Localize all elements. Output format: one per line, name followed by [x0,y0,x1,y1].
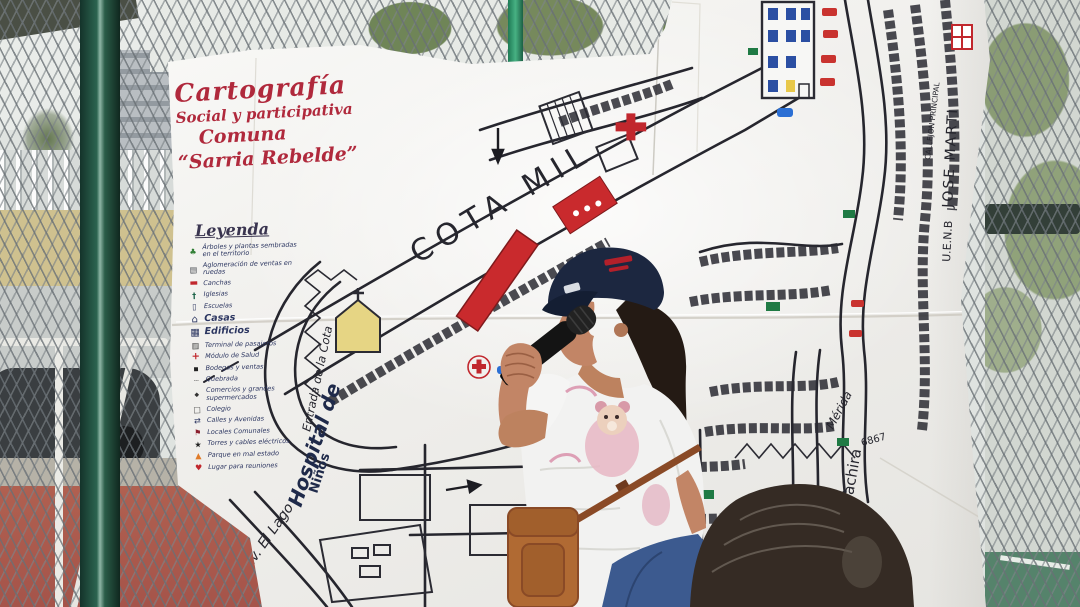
legend-item: ⚑Locales Comunales [192,425,304,437]
legend-item-label: Terminal de pasajeros [205,340,277,349]
legend-item: ◆Comercios y grandes supermercados [191,385,303,403]
buildings-icon: ▦ [190,328,201,337]
legend-item-label: Parque en mal estado [208,450,279,459]
legend-item: ▯Escuelas [189,300,301,312]
legend-item: ⇄Calles y Avenidas [192,414,304,426]
presenter-ear [614,323,628,337]
church-icon: † [189,291,200,300]
label-merida: Mérida [823,389,855,432]
legend-item-label: Torres y cables eléctricos [207,438,289,448]
sports-court-icon: ▬ [188,279,199,288]
legend-item-label: Bodegas y ventas [205,363,263,372]
legend-item-label: Escuelas [204,302,233,310]
terminal-icon: ▥ [190,341,201,350]
legend-item-label: Colegio [207,405,231,413]
legend-item-label: Quebrada [206,376,238,384]
legend-item-label: Aglomeración de ventas en ruedas [203,259,300,276]
legend-item-label: Iglesias [204,291,229,299]
plant-icon: ♣ [187,247,198,256]
star-icon: ★ [192,440,203,449]
legend-item: ▤Aglomeración de ventas en ruedas [188,259,300,277]
legend-item-label: Lugar para reuniones [208,462,278,471]
fence-pole [80,0,120,607]
legend-item-label: Módulo de Salud [205,352,259,361]
heart-icon: ♥ [193,463,204,472]
shops-icon: ▪ [190,364,201,373]
legend-item: ▪Bodegas y ventas [190,362,302,374]
legend-item-label: Calles y Avenidas [207,416,264,425]
flag-icon: ⚑ [192,428,203,437]
legend-item: ★Torres y cables eléctricos [192,437,304,449]
fence-pole-small [508,0,523,72]
audience-head [690,484,914,607]
school-icon: ▯ [189,302,200,311]
legend: Leyenda ♣Árboles y plantas sembradas en … [187,219,306,475]
legend-item: ▲Parque en mal estado [193,449,305,461]
legend-item: ♣Árboles y plantas sembradas en el terri… [187,242,299,260]
street-vendors-icon: ▤ [188,265,199,274]
triangle-icon: ▲ [193,451,204,460]
photo-scene: COTA MIL Entrada de la Cota Hospital de … [0,0,1080,607]
legend-item: ┄Quebrada [191,373,303,385]
legend-item: □Colegio [192,402,304,414]
supermarket-icon: ◆ [191,390,202,399]
legend-item: ⌂Casas [189,311,301,325]
chapel-flag [952,25,972,49]
poster-title: Cartografía Social y participativa Comun… [174,66,409,175]
legend-item: +Módulo de Salud [190,350,302,362]
arrows-icon: ⇄ [192,417,203,426]
legend-item-label: Locales Comunales [207,427,270,436]
legend-item-label: Edificios [204,326,249,338]
legend-item-label: Canchas [203,279,231,287]
label-uenb: U.E.N.B [940,220,955,262]
legend-item-label: Casas [204,313,235,325]
square-icon: □ [192,405,203,414]
houses-icon: ⌂ [189,315,200,324]
legend-item: ▦Edificios [189,325,301,339]
legend-item: ▥Terminal de pasajeros [190,338,302,350]
presenter [495,247,716,607]
health-cross-icon: + [190,353,201,362]
legend-item: ▬Canchas [188,277,300,289]
legend-item-label: Árboles y plantas sembradas en el territ… [202,242,299,259]
legend-item: ♥Lugar para reuniones [193,460,305,472]
blue-window-building [762,2,814,98]
legend-item-label: Comercios y grandes supermercados [206,385,303,402]
legend-title: Leyenda [195,219,299,241]
legend-item: †Iglesias [189,288,301,300]
creek-dashes-icon: ┄ [191,376,202,385]
